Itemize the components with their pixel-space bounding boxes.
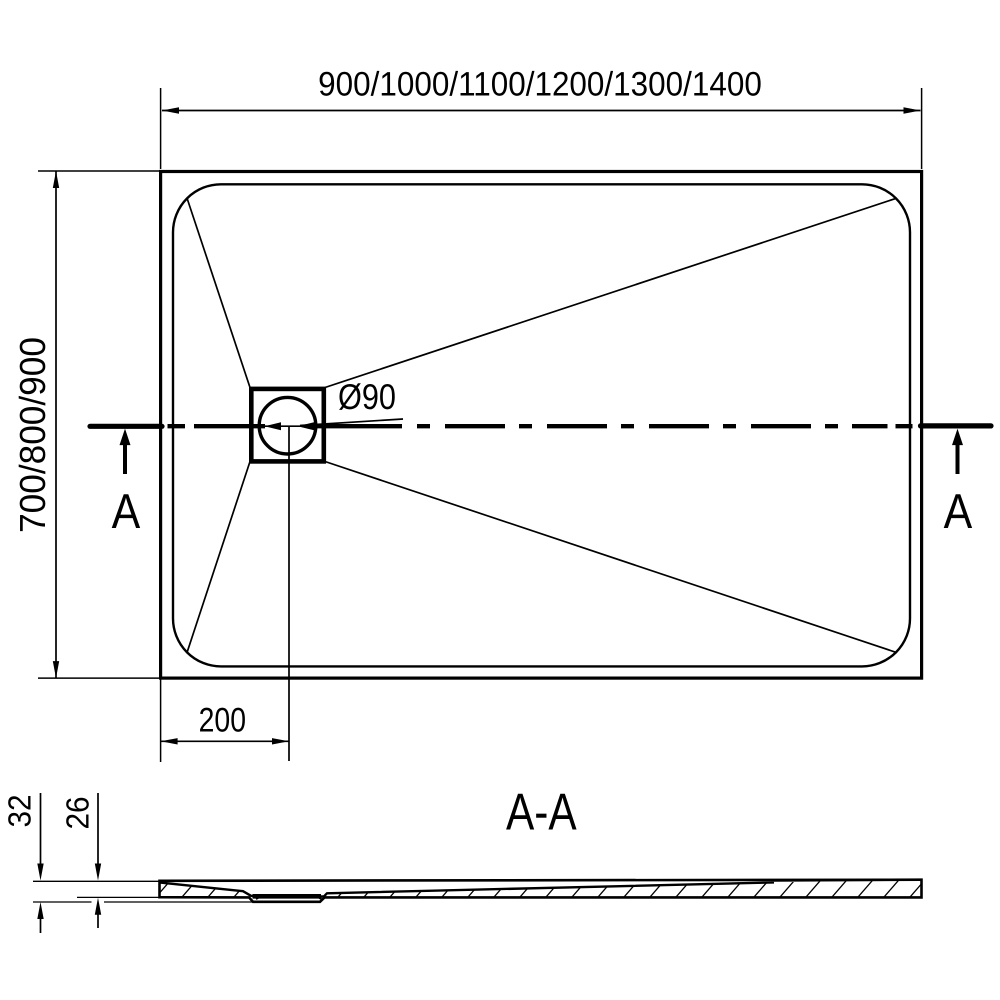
svg-text:Ø90: Ø90 — [338, 377, 396, 417]
svg-text:A-A: A-A — [506, 784, 577, 842]
svg-text:32: 32 — [2, 794, 38, 827]
svg-text:26: 26 — [60, 796, 96, 829]
svg-text:900/1000/1100/1200/1300/1400: 900/1000/1100/1200/1300/1400 — [318, 65, 762, 103]
svg-text:A: A — [112, 485, 141, 539]
svg-text:A: A — [944, 485, 973, 539]
svg-text:200: 200 — [199, 701, 246, 739]
svg-text:700/800/900: 700/800/900 — [12, 337, 53, 533]
